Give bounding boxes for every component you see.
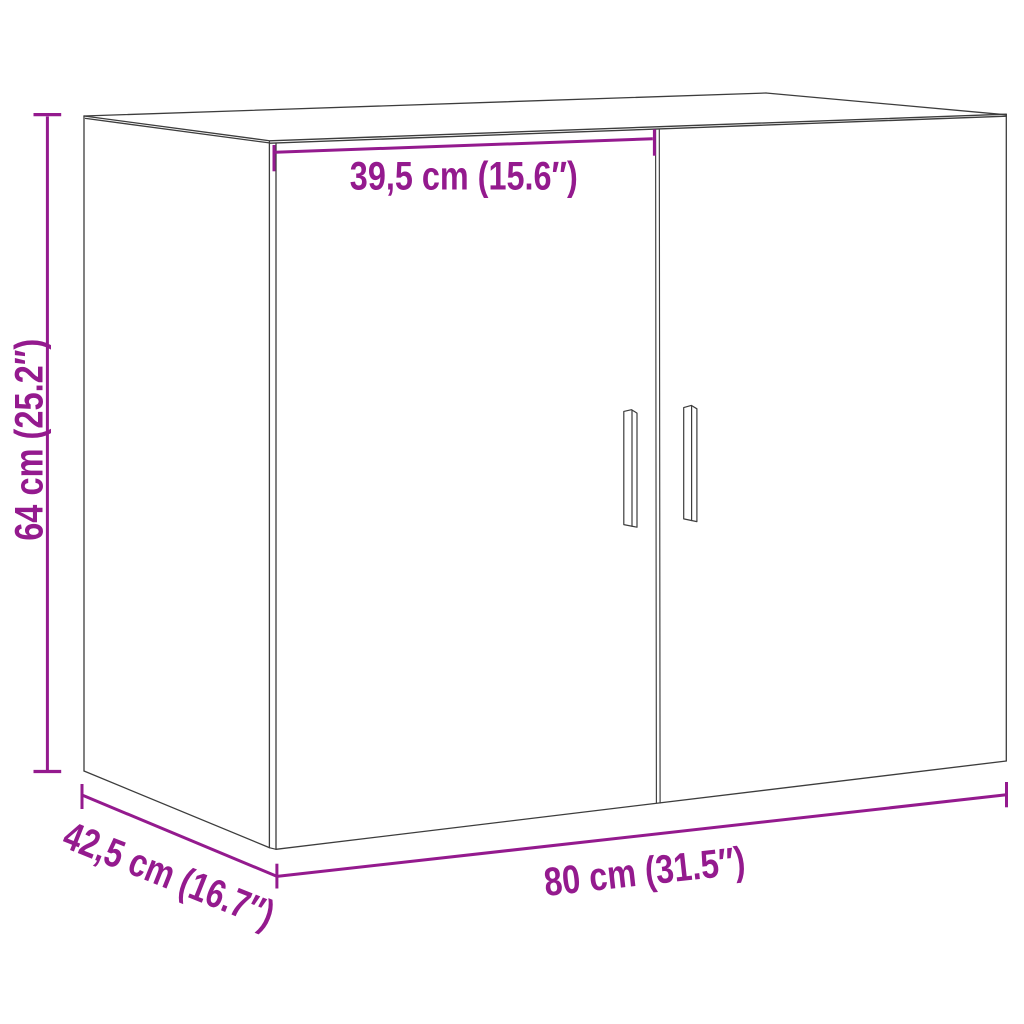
svg-text:80 cm (31.5″): 80 cm (31.5″): [542, 839, 748, 905]
svg-text:39,5 cm (15.6″): 39,5 cm (15.6″): [350, 155, 578, 199]
svg-text:64 cm (25.2″): 64 cm (25.2″): [8, 339, 52, 541]
